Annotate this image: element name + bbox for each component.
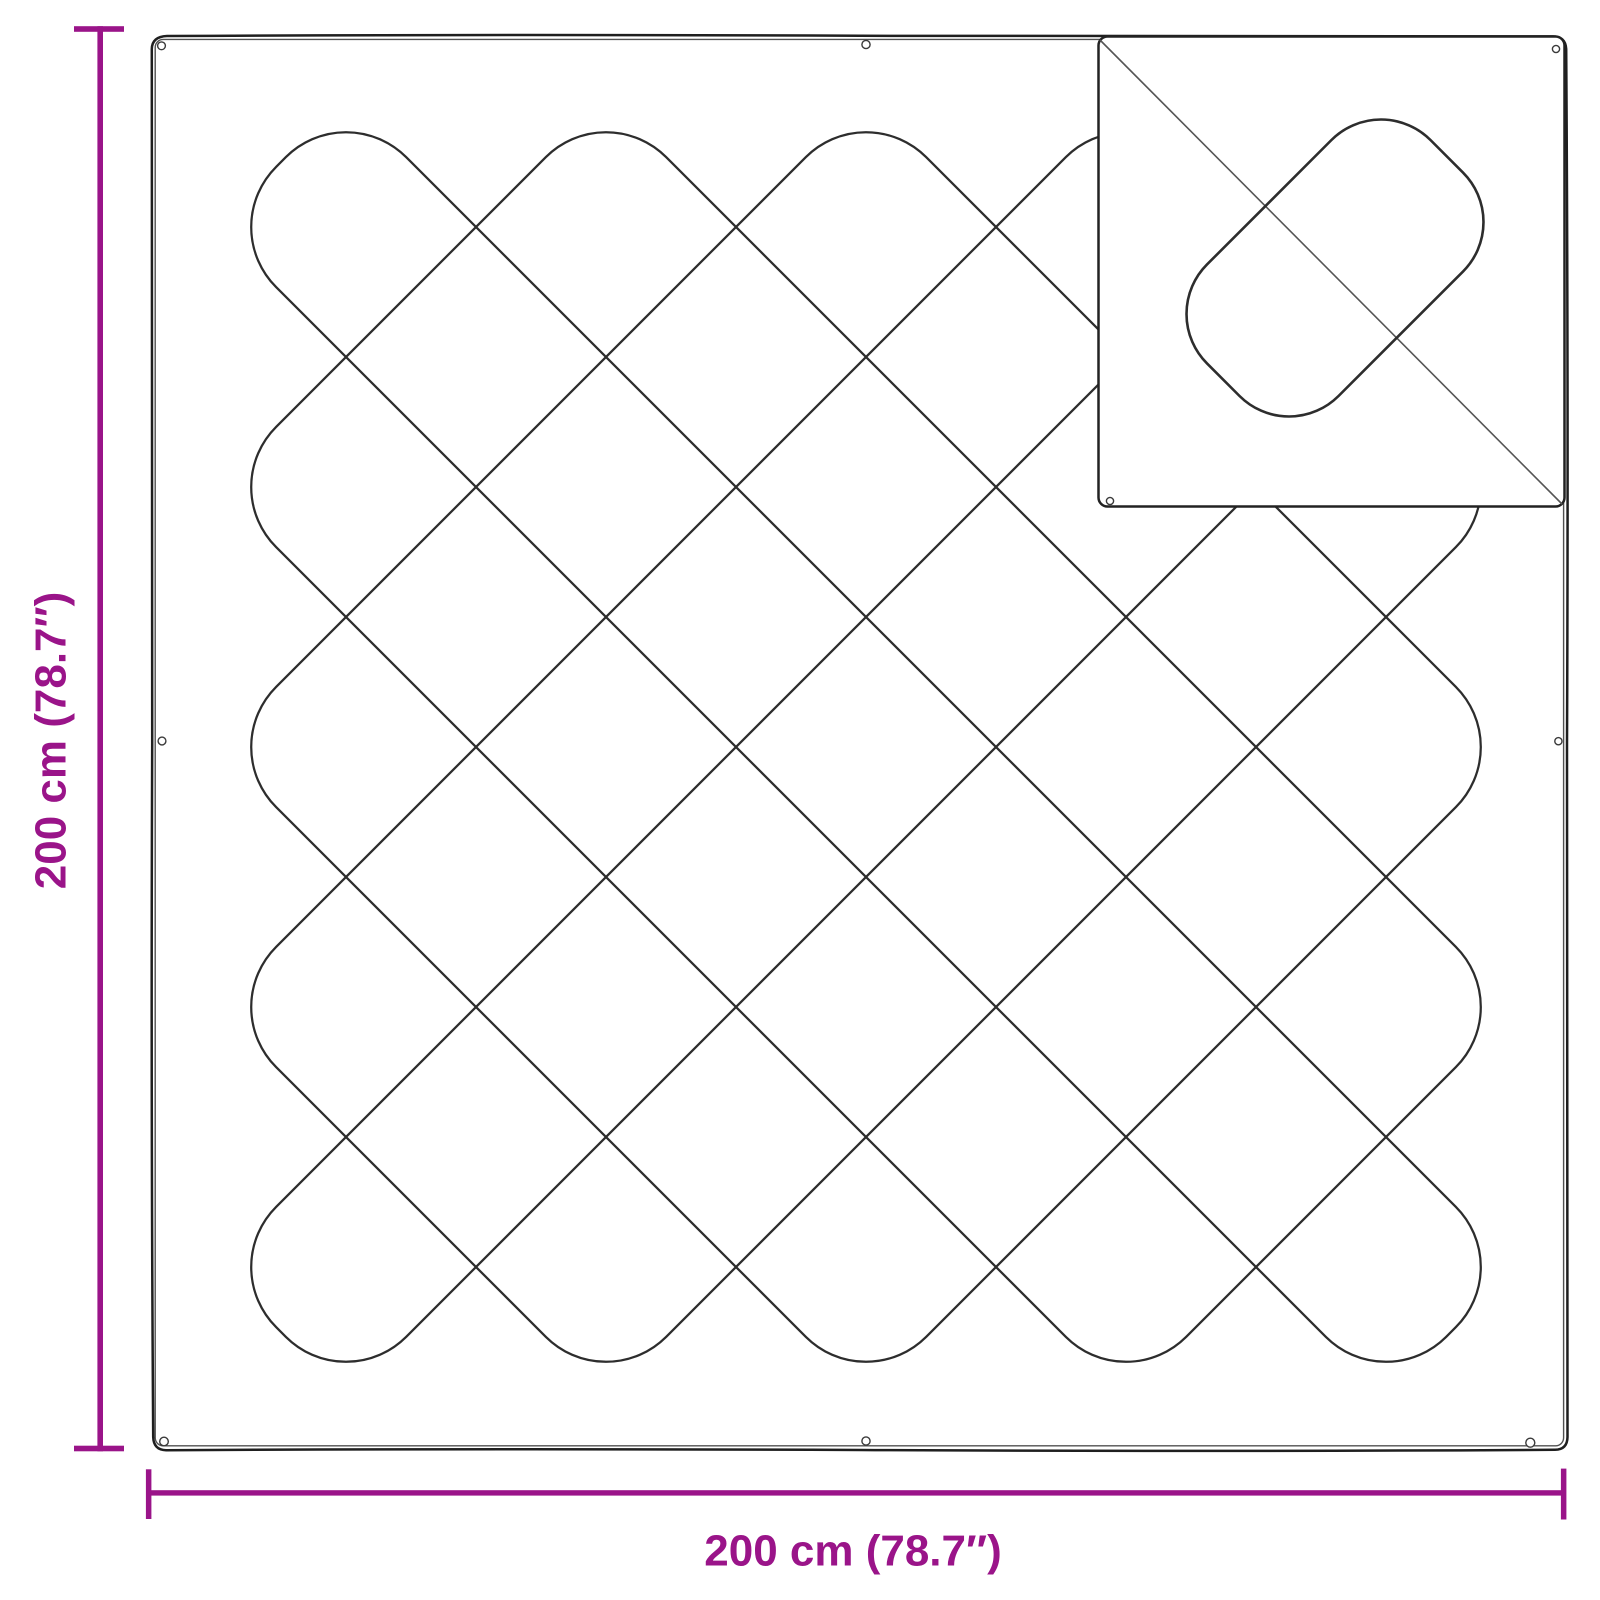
svg-text:200 cm (78.7″): 200 cm (78.7″): [704, 1527, 1001, 1576]
svg-text:200 cm (78.7″): 200 cm (78.7″): [27, 592, 76, 889]
